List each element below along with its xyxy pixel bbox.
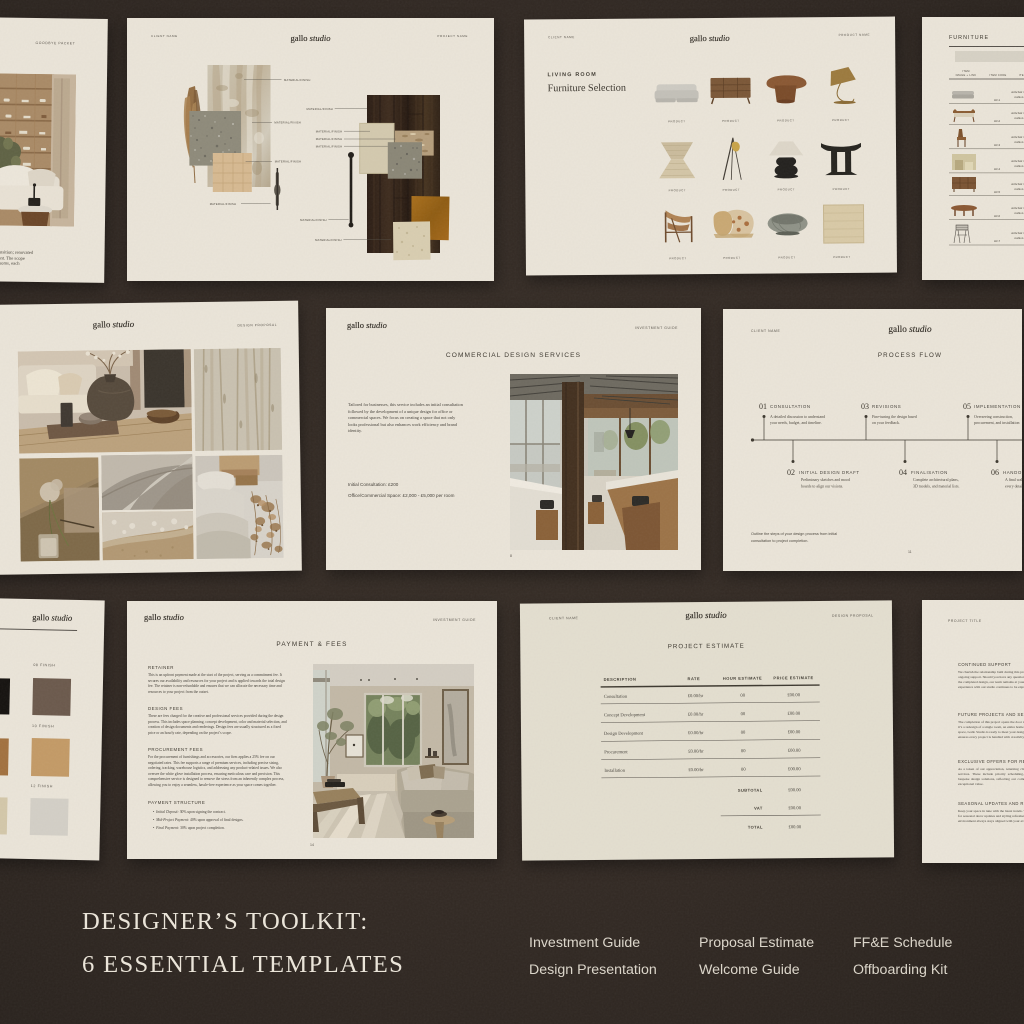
svg-text:LR-4: LR-4 bbox=[994, 167, 1001, 171]
svg-text:Armchair with: Armchair with bbox=[1011, 135, 1024, 139]
svg-text:£00.00: £00.00 bbox=[787, 692, 800, 697]
svg-text:PRODUCT: PRODUCT bbox=[833, 255, 850, 259]
svg-text:LR-7: LR-7 bbox=[994, 239, 1001, 243]
svg-text:00: 00 bbox=[741, 767, 746, 772]
svg-text:ITEM CODE: ITEM CODE bbox=[989, 73, 1006, 77]
svg-text:03: 03 bbox=[861, 402, 869, 411]
svg-text:RATE: RATE bbox=[688, 676, 701, 681]
svg-text:Installation: Installation bbox=[604, 768, 625, 773]
svg-text:04: 04 bbox=[899, 468, 907, 477]
svg-text:A final walkthrough to ensure: A final walkthrough to ensure bbox=[1005, 478, 1022, 482]
svg-text:IMPLEMENTATION: IMPLEMENTATION bbox=[974, 404, 1021, 409]
svg-text:£00.00: £00.00 bbox=[788, 729, 801, 734]
svg-text:£00.00: £00.00 bbox=[788, 766, 801, 771]
svg-text:MATERIAL/FINISH: MATERIAL/FINISH bbox=[306, 107, 333, 111]
svg-text:A detailed discussion to under: A detailed discussion to understand bbox=[770, 415, 825, 419]
svg-text:MATERIAL/FINISH: MATERIAL/FINISH bbox=[315, 238, 342, 242]
svg-text:PRODUCT: PRODUCT bbox=[723, 256, 740, 260]
svg-text:£00.00: £00.00 bbox=[788, 805, 801, 810]
svg-text:06: 06 bbox=[991, 468, 999, 477]
svg-text:IMAGE + LINK: IMAGE + LINK bbox=[956, 73, 977, 77]
svg-text:PRODUCT: PRODUCT bbox=[669, 188, 686, 192]
svg-text:00: 00 bbox=[740, 693, 745, 698]
svg-text:CONSULTATION: CONSULTATION bbox=[770, 404, 811, 409]
svg-text:procurement, and installation: procurement, and installation bbox=[974, 421, 1020, 426]
svg-text:00: 00 bbox=[741, 730, 746, 735]
svg-text:VAT: VAT bbox=[754, 806, 763, 811]
svg-text:3D models, and material lists.: 3D models, and material lists. bbox=[913, 485, 959, 490]
svg-text:PRODUCT: PRODUCT bbox=[669, 256, 686, 260]
svg-text:PRICE ESTIMATE: PRICE ESTIMATE bbox=[773, 675, 813, 680]
svg-text:LR-1: LR-1 bbox=[994, 98, 1001, 102]
svg-text:Armchair with: Armchair with bbox=[1011, 206, 1024, 210]
svg-text:cushion uph: cushion uph bbox=[1014, 95, 1024, 99]
svg-text:£0.00/hr: £0.00/hr bbox=[688, 712, 704, 717]
svg-text:DESCRIPTION: DESCRIPTION bbox=[604, 677, 637, 682]
svg-text:LR-2: LR-2 bbox=[994, 119, 1001, 123]
svg-text:Armchair with: Armchair with bbox=[1011, 90, 1024, 94]
svg-text:£00.00: £00.00 bbox=[788, 787, 801, 792]
svg-text:Armchair with: Armchair with bbox=[1011, 231, 1024, 235]
svg-text:02: 02 bbox=[787, 468, 795, 477]
svg-text:MATERIAL/FINISH: MATERIAL/FINISH bbox=[274, 121, 301, 125]
svg-text:cushion uph: cushion uph bbox=[1014, 187, 1024, 191]
svg-text:cushion uph: cushion uph bbox=[1014, 116, 1024, 120]
svg-text:every detail meets expectation: every detail meets expectations. bbox=[1005, 485, 1022, 489]
svg-text:PRODUCT: PRODUCT bbox=[778, 255, 795, 259]
svg-text:TOTAL: TOTAL bbox=[748, 825, 763, 830]
svg-text:£0.00/hr: £0.00/hr bbox=[688, 767, 704, 772]
svg-text:ITEM: ITEM bbox=[962, 69, 969, 73]
svg-text:ITEM: ITEM bbox=[1019, 73, 1024, 77]
svg-text:FINALISATION: FINALISATION bbox=[911, 470, 948, 475]
svg-text:Design Development: Design Development bbox=[604, 731, 644, 736]
svg-text:INITIAL DESIGN DRAFT: INITIAL DESIGN DRAFT bbox=[799, 470, 860, 475]
svg-text:HOUR ESTIMATE: HOUR ESTIMATE bbox=[723, 676, 762, 681]
svg-text:MATERIAL/FINISH: MATERIAL/FINISH bbox=[316, 129, 343, 133]
svg-text:MATERIAL/FINISH: MATERIAL/FINISH bbox=[284, 78, 311, 82]
svg-text:Overseeing construction,: Overseeing construction, bbox=[974, 415, 1013, 420]
svg-text:05: 05 bbox=[963, 402, 971, 411]
svg-text:MATERIAL/FINISH: MATERIAL/FINISH bbox=[300, 218, 327, 222]
svg-text:MATERIAL/FINISH: MATERIAL/FINISH bbox=[316, 144, 343, 148]
svg-text:cushion uph: cushion uph bbox=[1014, 164, 1024, 168]
svg-text:Complete architectural plans,: Complete architectural plans, bbox=[913, 478, 959, 483]
svg-text:MATERIAL/FINISH: MATERIAL/FINISH bbox=[316, 137, 343, 141]
svg-text:Armchair with: Armchair with bbox=[1011, 182, 1024, 186]
svg-text:00: 00 bbox=[741, 711, 746, 716]
svg-text:Consultation: Consultation bbox=[604, 694, 628, 699]
svg-text:cushion uph: cushion uph bbox=[1014, 140, 1024, 144]
svg-text:SUBTOTAL: SUBTOTAL bbox=[738, 788, 763, 793]
svg-text:MATERIAL/FINISH: MATERIAL/FINISH bbox=[275, 160, 302, 164]
svg-text:on your feedback.: on your feedback. bbox=[872, 421, 900, 425]
svg-text:£00.00: £00.00 bbox=[788, 748, 801, 753]
svg-text:PRODUCT: PRODUCT bbox=[668, 119, 685, 123]
svg-text:£0.00/hr: £0.00/hr bbox=[688, 693, 704, 698]
svg-text:MATERIAL/FINISH: MATERIAL/FINISH bbox=[210, 202, 237, 206]
svg-text:LR-6: LR-6 bbox=[994, 214, 1001, 218]
svg-text:HANDOVER: HANDOVER bbox=[1003, 470, 1022, 475]
svg-text:PRODUCT: PRODUCT bbox=[778, 187, 795, 191]
svg-text:01: 01 bbox=[759, 402, 767, 411]
svg-text:boards to align our visions.: boards to align our visions. bbox=[801, 485, 843, 489]
svg-text:£00.00: £00.00 bbox=[789, 824, 802, 829]
svg-text:REVISIONS: REVISIONS bbox=[872, 404, 901, 409]
svg-text:PRODUCT: PRODUCT bbox=[832, 118, 849, 122]
svg-text:PRODUCT: PRODUCT bbox=[833, 187, 850, 191]
svg-text:£0.00/hr: £0.00/hr bbox=[688, 749, 704, 754]
svg-text:PRODUCT: PRODUCT bbox=[722, 119, 739, 123]
svg-text:00: 00 bbox=[741, 748, 746, 753]
svg-text:Concept Development: Concept Development bbox=[604, 712, 646, 717]
svg-text:LR-5: LR-5 bbox=[994, 190, 1001, 194]
svg-text:your needs, budget, and timeli: your needs, budget, and timeline. bbox=[770, 421, 822, 426]
svg-text:Armchair with: Armchair with bbox=[1011, 159, 1024, 163]
svg-text:£00.00: £00.00 bbox=[788, 711, 801, 716]
svg-text:Armchair with: Armchair with bbox=[1011, 111, 1024, 115]
svg-text:Fine-tuning the design based: Fine-tuning the design based bbox=[872, 415, 917, 419]
svg-text:Procurement: Procurement bbox=[604, 749, 628, 754]
svg-text:£0.00/hr: £0.00/hr bbox=[688, 730, 704, 735]
svg-text:Preliminary sketches and mood: Preliminary sketches and mood bbox=[801, 478, 850, 482]
svg-text:PRODUCT: PRODUCT bbox=[777, 118, 794, 122]
svg-text:cushion uph: cushion uph bbox=[1014, 236, 1024, 240]
svg-text:PRODUCT: PRODUCT bbox=[723, 188, 740, 192]
svg-text:cushion uph: cushion uph bbox=[1014, 211, 1024, 215]
svg-text:LR-3: LR-3 bbox=[994, 143, 1001, 147]
